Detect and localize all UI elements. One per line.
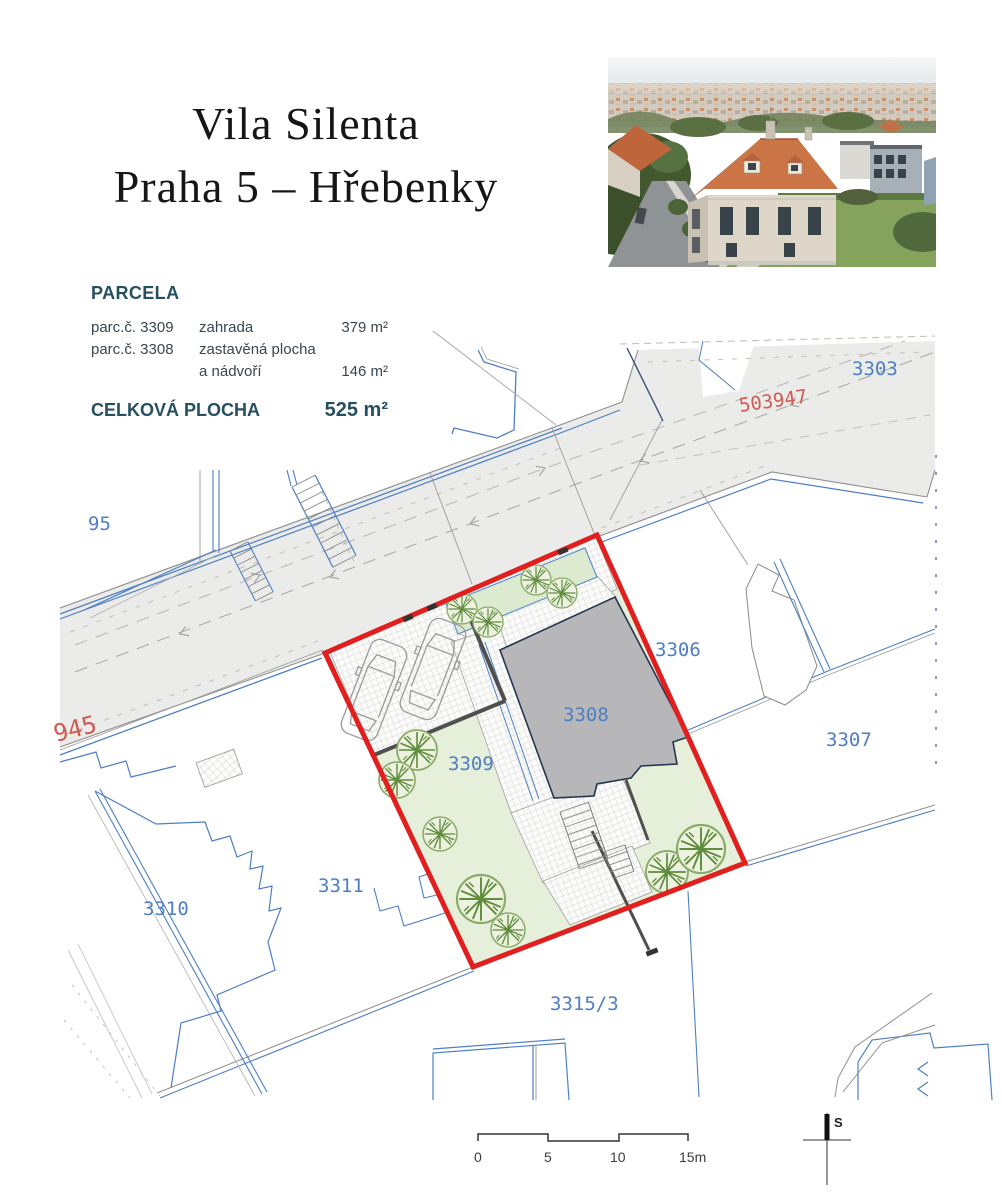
title-line-2: Praha 5 – Hřebenky — [30, 155, 582, 218]
parcel-label-95: 95 — [88, 513, 111, 535]
parcel-label-3310: 3310 — [143, 898, 189, 920]
parcel-area — [319, 339, 388, 360]
parcel-id — [91, 361, 199, 382]
parcel-id: parc.č. 3309 — [91, 317, 199, 338]
tree-icon — [491, 913, 525, 947]
tree-icon — [473, 607, 503, 637]
scale-tick-10: 10 — [610, 1149, 626, 1165]
parcel-label-3308: 3308 — [563, 704, 609, 726]
parcela-panel: PARCELA parc.č. 3309 zahrada 379 m² parc… — [91, 283, 391, 422]
parcel-label-3303: 3303 — [852, 358, 898, 380]
parcel-area: 379 m² — [319, 317, 388, 338]
tree-icon — [677, 825, 725, 873]
parcela-heading: PARCELA — [91, 283, 391, 304]
parcel-label-3315-3: 3315/3 — [550, 993, 619, 1015]
parcel-label-3311: 3311 — [318, 875, 364, 897]
title-line-1: Vila Silenta — [30, 92, 582, 155]
scale-bar: 0 5 10 15m — [474, 1134, 706, 1165]
parcel-use: zastavěná plocha — [199, 339, 319, 360]
scale-tick-15: 15m — [679, 1149, 706, 1165]
total-area-value: 525 m² — [325, 399, 388, 422]
scale-tick-0: 0 — [474, 1149, 482, 1165]
parcel-label-3307: 3307 — [826, 729, 872, 751]
parcel-id: parc.č. 3308 — [91, 339, 199, 360]
tree-icon — [547, 578, 577, 608]
scale-tick-5: 5 — [544, 1149, 552, 1165]
total-area-label: CELKOVÁ PLOCHA — [91, 400, 260, 421]
north-label: S — [834, 1115, 843, 1130]
parcel-area: 146 m² — [319, 361, 388, 382]
tree-icon — [423, 817, 457, 851]
parcel-use: a nádvoří — [199, 361, 319, 382]
tree-icon — [521, 565, 551, 595]
neighbor-building-footprint — [746, 564, 817, 705]
parcel-label-3309: 3309 — [448, 753, 494, 775]
north-arrow-icon: S — [803, 1113, 851, 1185]
road-label-945: 945 — [51, 710, 100, 748]
parcel-label-3306: 3306 — [655, 639, 701, 661]
brochure-page: 95 3303 3306 3307 3308 3309 3310 3311 33… — [0, 0, 1002, 1200]
total-area-row: CELKOVÁ PLOCHA 525 m² — [91, 399, 388, 422]
parcel-use: zahrada — [199, 317, 319, 338]
page-title: Vila Silenta Praha 5 – Hřebenky — [30, 92, 582, 218]
parcela-table: parc.č. 3309 zahrada 379 m² parc.č. 3308… — [91, 317, 391, 382]
villa-aerial-photo — [608, 57, 936, 267]
